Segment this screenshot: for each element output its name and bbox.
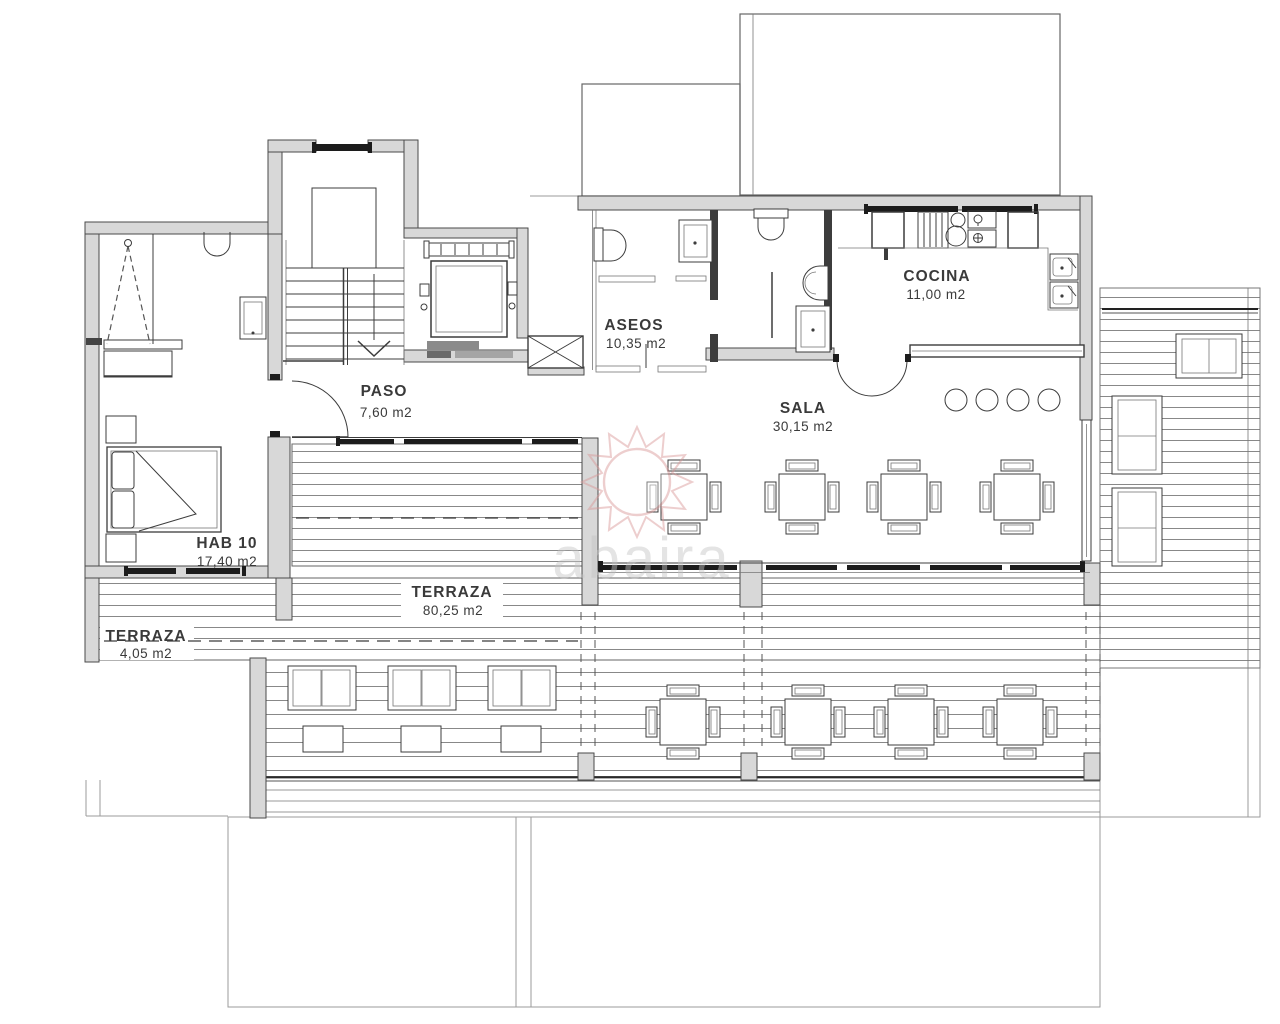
wardrobe-pivot: [125, 240, 132, 247]
pergola-post-4: [1084, 563, 1100, 605]
stair-landing: [312, 188, 376, 268]
label-terraza-small-name: TERRAZA: [105, 628, 186, 645]
elevator-knob-r: [509, 303, 515, 309]
wall-bedroom-right-lower: [268, 437, 290, 578]
kitchen-sink-2: [1050, 282, 1078, 308]
label-paso-name: PASO: [361, 383, 408, 400]
bedroom-door-arc: [292, 381, 348, 437]
fridge-icon: [872, 212, 904, 248]
toilet-tank-right: [754, 209, 788, 218]
elevator: [420, 241, 583, 368]
label-hab10-name: HAB 10: [196, 535, 257, 552]
deck-lounger-1: [1112, 396, 1162, 474]
bath-shelf-1: [599, 276, 655, 282]
sun-lounger-1: [288, 666, 356, 710]
terrace-glass-2: [404, 439, 522, 444]
label-aseos-name: ASEOS: [604, 317, 663, 334]
pergola-post-2: [741, 753, 757, 780]
stair-window-tick-r: [368, 142, 372, 153]
pergola-post-1: [578, 753, 594, 780]
label-terraza-main-area: 80,25 m2: [423, 603, 483, 618]
lower-floor-outline: [228, 817, 1100, 1007]
label-aseos-area: 10,35 m2: [606, 336, 666, 351]
wall-stair-top-left: [268, 140, 316, 152]
terrace-glass-1: [340, 439, 394, 444]
watermark-sun-icon: [604, 449, 670, 515]
kitchen-edge-tick-l: [864, 204, 868, 214]
toilet-tank-left: [594, 228, 603, 261]
dining-table-sala-3: [867, 460, 941, 534]
wardrobe-dash-1: [107, 246, 128, 344]
sala-glass-4: [930, 565, 1002, 570]
bed-pillow-2: [112, 491, 134, 528]
staircase: [283, 188, 404, 365]
wall-basin-icon: [204, 232, 230, 256]
sala-glass-tick-r: [1080, 561, 1085, 572]
stair-window: [316, 144, 368, 151]
floor-plan-canvas: abaira PASO 7,60 m2 HAB 10 17,40 m2 ASEO…: [0, 0, 1280, 1024]
roof-outline-right: [740, 14, 1060, 195]
elevator-cab-inner: [436, 266, 502, 332]
bath-sink-left-drain: [693, 241, 696, 244]
hob-module-1-knob: [974, 215, 982, 223]
wall-sala-post: [740, 561, 762, 607]
pergola-post-3: [1084, 753, 1100, 780]
terrace-glass-3: [532, 439, 578, 444]
fridge-handle: [884, 248, 888, 260]
label-paso-area: 7,60 m2: [360, 405, 412, 420]
bidet-icon: [803, 266, 828, 300]
wall-main-right: [1080, 196, 1092, 420]
elevator-sill-1: [427, 341, 479, 350]
label-cocina-name: COCINA: [903, 268, 970, 285]
roof-outline-left: [582, 84, 740, 196]
wall-bedroom-right-upper: [268, 222, 282, 380]
wall-elevator-right: [517, 228, 528, 338]
bedroom-cabinet-dot: [252, 332, 255, 335]
elevator-guide-r: [508, 282, 517, 295]
floor-plan-svg: abaira PASO 7,60 m2 HAB 10 17,40 m2 ASEO…: [0, 0, 1280, 1024]
label-terraza-main-name: TERRAZA: [411, 584, 492, 601]
deck-lounger-2: [1112, 488, 1162, 566]
elevator-rail-cap-l: [424, 241, 429, 258]
bedroom-window-tick-l: [124, 566, 128, 576]
elevator-knob-l: [421, 304, 427, 310]
bar-stool-4: [1038, 389, 1060, 411]
bath-divider-wall-lower: [710, 334, 718, 362]
dining-table-sala-4: [980, 460, 1054, 534]
elevator-rail-cap-r: [509, 241, 514, 258]
kitchen-door-jamb-right: [905, 354, 911, 362]
wall-stair-right: [404, 140, 418, 236]
lower-floor-outline-right: [1100, 668, 1260, 817]
sun-lounger-3: [488, 666, 556, 710]
nightstand-bottom: [106, 534, 136, 562]
dishwasher-icon: [918, 212, 948, 248]
label-cocina-area: 11,00 m2: [906, 287, 965, 302]
closet-rod-end: [86, 338, 102, 345]
dining-table-sala-2: [765, 460, 839, 534]
bath-shelf-2: [676, 276, 706, 281]
wall-elevator-top: [404, 228, 528, 238]
bedroom-door-jamb-bottom: [270, 431, 280, 437]
closet-shelf: [104, 340, 182, 349]
bedroom-cabinet-inner: [244, 302, 262, 334]
wall-left-terrace: [85, 578, 99, 662]
kitchen-door-arc-right: [872, 360, 907, 396]
lower-terrace-left-post: [250, 658, 266, 818]
kitchen-door-arc-left: [837, 360, 872, 396]
label-terraza-small-area: 4,05 m2: [120, 646, 172, 661]
bar-stool-3: [1007, 389, 1029, 411]
elevator-cab: [431, 261, 507, 337]
bed-pillow-1: [112, 452, 134, 489]
side-table-1: [303, 726, 343, 752]
bath-threshold-1: [596, 366, 640, 372]
elevator-guide-l: [420, 284, 429, 296]
toilet-right-icon: [758, 218, 784, 240]
bedroom-desk: [104, 351, 172, 377]
elevator-sill-2: [455, 351, 513, 358]
burner-small: [951, 213, 965, 227]
toilet-left-icon: [603, 230, 626, 261]
sala-glass-3: [847, 565, 920, 570]
side-table-2: [401, 726, 441, 752]
sala-glass-2: [766, 565, 837, 570]
wall-bedroom-left: [85, 222, 99, 578]
bedroom: [86, 232, 266, 562]
burner-large: [946, 226, 966, 246]
label-hab10-area: 17,40 m2: [197, 554, 257, 569]
sala-glass-5: [1010, 565, 1080, 570]
stair-down-arrow: [358, 341, 390, 356]
bedroom-window-1: [128, 568, 176, 574]
kitchen-sink-1: [1050, 254, 1078, 280]
side-table-3: [501, 726, 541, 752]
bedroom-door-jamb-top: [270, 374, 280, 380]
nightstand-top: [106, 416, 136, 443]
bar-stool-1: [945, 389, 967, 411]
bath-sink-right-drain: [811, 328, 814, 331]
wall-bedroom-top: [85, 222, 282, 234]
kitchen-counter-edge-1: [868, 206, 958, 212]
bath-threshold-2: [658, 366, 706, 372]
wall-terrace-left-post: [276, 578, 292, 620]
watermark-text: abaira: [552, 526, 731, 591]
label-sala-name: SALA: [780, 400, 826, 417]
wardrobe-dash-2: [128, 246, 150, 344]
kitchen-cabinet: [1008, 212, 1038, 248]
bar-stool-2: [976, 389, 998, 411]
upper-terrace-deck: [292, 444, 582, 566]
kitchen-door-jamb-left: [833, 354, 839, 362]
label-sala-area: 30,15 m2: [773, 419, 833, 434]
stair-window-tick-l: [312, 142, 316, 153]
sun-lounger-2: [388, 666, 456, 710]
elevator-sill-3: [427, 351, 451, 358]
wall-stair-left: [268, 140, 282, 234]
